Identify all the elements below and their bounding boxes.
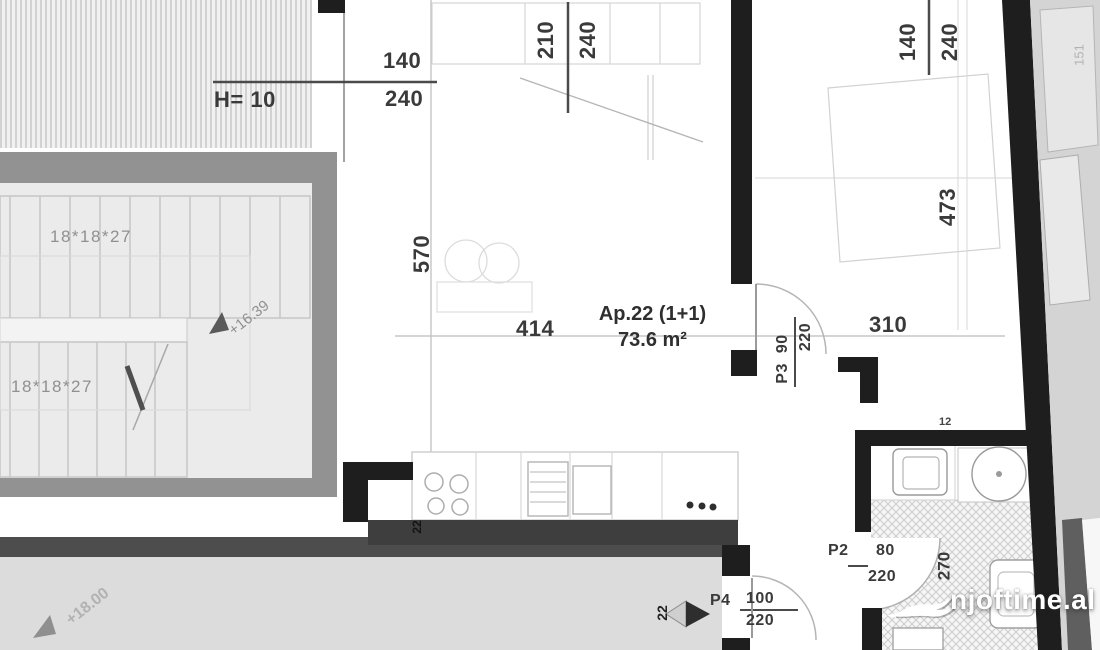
floor-plan: 140 240 H= 10 210 240 140 240 570 414 31… — [0, 0, 1100, 650]
dim-window-mid-width: 210 — [535, 21, 557, 59]
door-p2-code: P2 — [828, 543, 849, 559]
watermark-bird-icon — [886, 584, 960, 628]
dim-window-right-height: 240 — [939, 23, 961, 61]
dim-bedroom-depth: 473 — [937, 188, 959, 226]
dining-set-outline — [437, 240, 532, 312]
bidet-icon — [893, 628, 943, 650]
apartment-label: Ap.22 (1+1) — [570, 301, 735, 327]
stair-riser-label-upper: 18*18*27 — [50, 228, 132, 245]
apartment-title-block: Ap.22 (1+1) 73.6 m² — [570, 301, 735, 353]
dim-bath-depth: 270 — [936, 552, 953, 580]
door-p4-size: 100 — [746, 591, 774, 607]
dim-living-width: 414 — [516, 318, 554, 340]
watermark-site-name: njoftime.al — [950, 584, 1096, 616]
dim-living-depth: 570 — [411, 235, 433, 273]
door-p3-label: P3 90 — [775, 334, 791, 383]
entrance-unit-number: 22 — [655, 605, 669, 621]
door-arc-p4 — [752, 576, 816, 640]
washbasin-icon — [893, 449, 947, 495]
door-p3-code: P3 — [775, 363, 791, 384]
door-p3-size: 90 — [775, 334, 791, 353]
door-p4-code: P4 — [710, 593, 731, 609]
door-p3-height: 220 — [798, 323, 814, 351]
apartment-area: 73.6 m² — [570, 327, 735, 353]
door-p4-height: 220 — [746, 613, 774, 629]
stair-landing — [0, 318, 187, 342]
door-arc-p3 — [756, 284, 826, 354]
hatched-void-area — [0, 0, 312, 148]
dim-window-left-height: 240 — [385, 88, 423, 110]
dim-window-mid-height: 240 — [577, 21, 599, 59]
dim-wall-tick: 12 — [939, 417, 951, 428]
dim-hall-width: 310 — [869, 314, 907, 336]
wall-note: 22 — [411, 520, 423, 533]
bed-outline — [828, 74, 1000, 262]
stair-riser-label-lower: 18*18*27 — [11, 378, 93, 395]
dim-facade-side: 151 — [1073, 44, 1086, 66]
door-p2-height: 220 — [868, 569, 896, 585]
stairwell — [0, 152, 337, 497]
dim-window-right-width: 140 — [897, 23, 919, 61]
dim-window-left-width: 140 — [383, 50, 421, 72]
height-note: H= 10 — [214, 89, 276, 111]
kitchen-counter — [412, 452, 738, 520]
door-p2-size: 80 — [876, 543, 895, 559]
